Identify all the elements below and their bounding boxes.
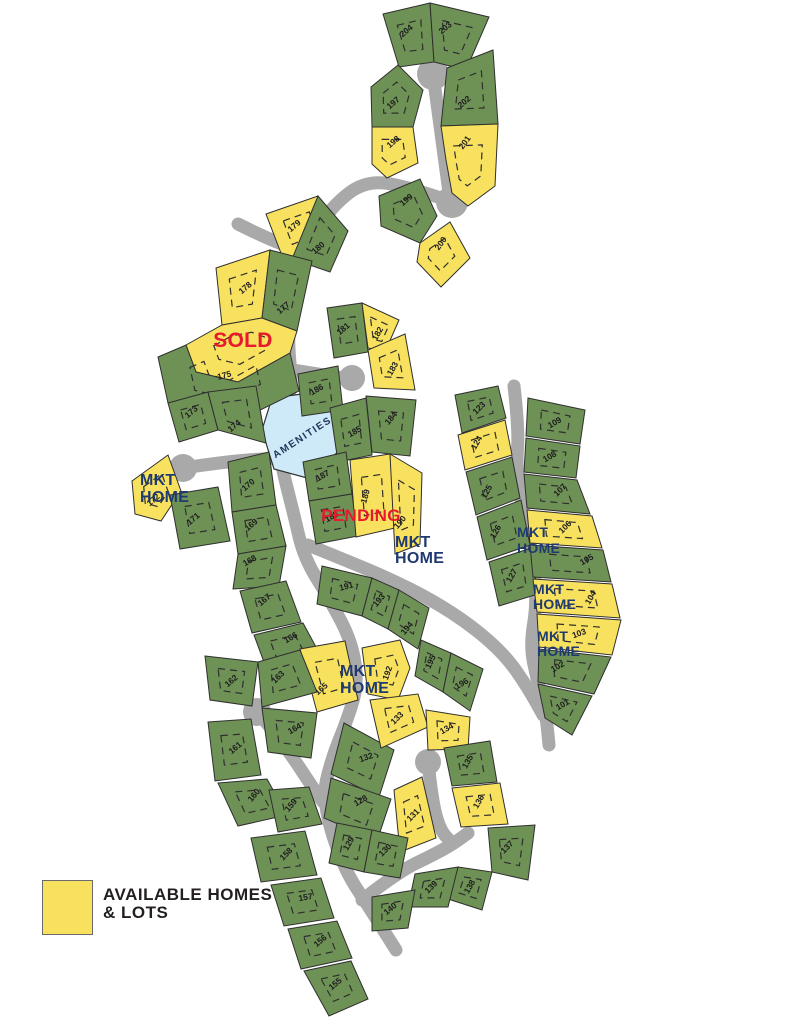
lot-198: 198 (372, 127, 418, 178)
sold-label: SOLD (213, 329, 273, 352)
lot-196: 196 (443, 653, 483, 711)
mkt-home-label: HOME (533, 596, 576, 612)
lot-parcel-177[interactable] (262, 250, 312, 331)
lot-140: 140 (372, 890, 415, 931)
lot-184: 184 (366, 396, 416, 456)
lot-167: 167 (240, 581, 301, 633)
lot-177: 177 (262, 250, 312, 331)
lot-157: 157 (271, 878, 334, 926)
lot-204: 204 (383, 3, 434, 67)
lot-135: 135 (444, 741, 497, 786)
lot-136: 136 (452, 783, 508, 827)
cul-de-sac (415, 749, 441, 775)
mkt-home-label: MKT (340, 663, 376, 680)
mkt-home-label: MKT (395, 534, 431, 551)
lot-map-svg: AMENITIES2042031972021982011992001791801… (0, 0, 792, 1024)
lot-161: 161 (208, 719, 261, 781)
lot-158: 158 (251, 831, 317, 882)
lot-137: 137 (488, 825, 535, 880)
mkt-home-label: HOME (140, 489, 189, 506)
lot-156: 156 (288, 921, 352, 969)
lot-parcel-169[interactable] (232, 505, 286, 554)
lot-133: 133 (370, 694, 428, 748)
lot-162: 162 (205, 656, 258, 706)
pending-label: PENDING (321, 506, 401, 525)
mkt-home-label: HOME (537, 643, 580, 659)
lot-164: 164 (262, 708, 317, 758)
lot-parcel-167[interactable] (240, 581, 301, 633)
lot-169: 169 (232, 505, 286, 554)
mkt-home-label: MKT (533, 581, 564, 597)
lot-parcel-174[interactable] (208, 386, 266, 443)
lot-170: 170 (228, 452, 276, 512)
lot-108: 108 (524, 438, 580, 478)
lot-155: 155 (304, 961, 368, 1016)
lot-181: 181 (327, 303, 368, 358)
lot-185: 185 (330, 398, 372, 462)
mkt-home-label: MKT (517, 524, 548, 540)
cul-de-sac (339, 365, 365, 391)
lot-134: 134 (426, 710, 470, 750)
lot-178: 178 (216, 250, 270, 325)
mkt-home-label: MKT (537, 628, 568, 644)
mkt-home-label: HOME (340, 680, 389, 697)
lot-174: 174 (208, 386, 266, 443)
lot-130: 130 (364, 830, 408, 878)
mkt-home-label: HOME (517, 540, 560, 556)
site-plan-map: AMENITIES2042031972021982011992001791801… (0, 0, 792, 1024)
lot-109: 109 (526, 398, 585, 444)
lot-107: 107 (524, 474, 590, 514)
lot-parcel-137[interactable] (488, 825, 535, 880)
mkt-home-label: MKT (140, 472, 176, 489)
mkt-home-label: HOME (395, 550, 444, 567)
lot-parcel-184[interactable] (366, 396, 416, 456)
